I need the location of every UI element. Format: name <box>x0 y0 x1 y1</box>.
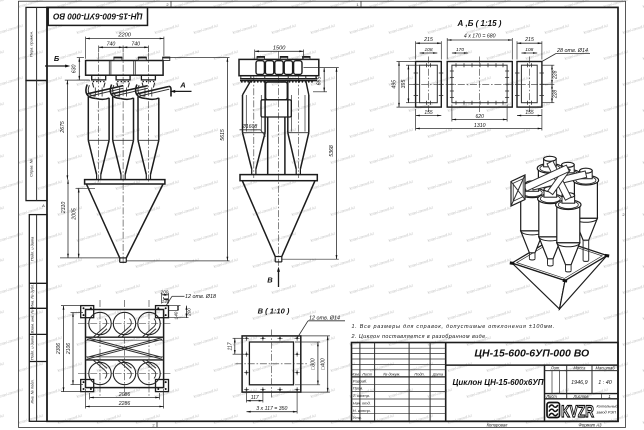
svg-text:1. Все размеры для справок, до: 1. Все размеры для справок, допустимые о… <box>352 324 556 330</box>
svg-text:495: 495 <box>392 80 398 89</box>
svg-text:5368: 5368 <box>329 145 335 157</box>
svg-text:Пров.: Пров. <box>353 386 364 391</box>
svg-text:Ø1608: Ø1608 <box>241 124 258 130</box>
svg-text:№ докум.: № докум. <box>383 371 400 376</box>
svg-text:200: 200 <box>187 308 192 317</box>
svg-text:1 : 40: 1 : 40 <box>598 380 612 386</box>
svg-text:2106: 2106 <box>66 343 72 355</box>
svg-text:1310: 1310 <box>474 123 486 129</box>
svg-text:Перв. примен.: Перв. примен. <box>29 31 34 57</box>
svg-text:665: 665 <box>316 77 322 86</box>
svg-text:228: 228 <box>553 90 559 100</box>
svg-text:□400: □400 <box>320 358 326 370</box>
svg-text:Н. контр.: Н. контр. <box>353 408 371 413</box>
svg-text:228: 228 <box>553 70 559 80</box>
svg-text:ЦН-15-600-6УП-000 ВО: ЦН-15-600-6УП-000 ВО <box>474 348 589 360</box>
svg-text:Копировал: Копировал <box>487 422 508 427</box>
svg-text:215: 215 <box>423 37 433 43</box>
svg-text:215: 215 <box>524 37 534 43</box>
svg-text:Лист: Лист <box>361 371 373 376</box>
svg-text:3 х 117 = 350: 3 х 117 = 350 <box>256 406 287 412</box>
svg-text:Утв.: Утв. <box>353 415 362 420</box>
svg-text:140: 140 <box>174 311 179 319</box>
svg-text:108: 108 <box>424 47 432 53</box>
svg-text:□300: □300 <box>311 358 317 370</box>
svg-text:12 отв. Ø18: 12 отв. Ø18 <box>185 294 216 300</box>
svg-text:Нач. отд.: Нач. отд. <box>353 400 371 405</box>
svg-text:KVZR: KVZR <box>561 404 594 422</box>
svg-text:Лит.: Лит. <box>550 365 561 370</box>
svg-text:Справ. №: Справ. № <box>29 158 34 176</box>
svg-text:Взам. инв. №: Взам. инв. № <box>29 309 34 334</box>
svg-text:2005: 2005 <box>72 208 78 221</box>
svg-text:Дата: Дата <box>432 371 444 376</box>
svg-text:2675: 2675 <box>60 121 66 134</box>
svg-text:Лист: Лист <box>545 394 557 399</box>
svg-text:2. Циклон поставляется в разоб: 2. Циклон поставляется в разобранном вид… <box>351 334 488 340</box>
svg-text:28 отв. Ø14: 28 отв. Ø14 <box>556 48 588 54</box>
svg-text:завод РЭП: завод РЭП <box>596 410 617 415</box>
svg-text:4 х 170 = 680: 4 х 170 = 680 <box>464 33 496 39</box>
svg-text:Изм.: Изм. <box>352 371 360 376</box>
svg-text:117: 117 <box>251 395 259 401</box>
svg-text:2286: 2286 <box>118 401 131 407</box>
svg-text:117: 117 <box>227 342 233 350</box>
svg-text:2310: 2310 <box>61 202 67 215</box>
svg-text:200: 200 <box>160 289 169 294</box>
svg-text:Формат А3: Формат А3 <box>579 422 603 427</box>
svg-text:ЦН-15-600-6УП-000 ВО: ЦН-15-600-6УП-000 ВО <box>52 12 142 21</box>
svg-text:Разраб.: Разраб. <box>353 378 367 383</box>
svg-text:Котельный: Котельный <box>597 404 619 409</box>
svg-text:Подп. и дата: Подп. и дата <box>29 335 34 360</box>
svg-text:Подп. и дата: Подп. и дата <box>29 236 34 261</box>
svg-text:Циклон ЦН-15-600х6УП: Циклон ЦН-15-600х6УП <box>452 378 543 387</box>
svg-text:Т. контр.: Т. контр. <box>353 393 370 398</box>
svg-text:155: 155 <box>424 110 433 116</box>
svg-text:Масса: Масса <box>573 365 586 370</box>
svg-text:А: А <box>42 203 45 208</box>
svg-text:В: В <box>267 276 273 285</box>
svg-text:Б: Б <box>54 54 60 63</box>
svg-text:Листов: Листов <box>573 394 590 399</box>
svg-text:2200: 2200 <box>117 33 131 39</box>
svg-text:Масштаб: Масштаб <box>595 365 615 370</box>
svg-text:395: 395 <box>401 80 407 89</box>
svg-text:170: 170 <box>456 47 464 53</box>
svg-text:А: А <box>179 81 185 90</box>
svg-text:А ,Б ( 1:15 ): А ,Б ( 1:15 ) <box>457 19 502 28</box>
svg-text:108: 108 <box>525 47 533 53</box>
svg-text:1946,9: 1946,9 <box>571 380 588 386</box>
svg-text:Подп.: Подп. <box>414 371 424 376</box>
svg-text:740: 740 <box>107 41 116 47</box>
svg-text:Инв. № подл.: Инв. № подл. <box>29 379 34 403</box>
svg-text:155: 155 <box>525 110 534 116</box>
svg-text:740: 740 <box>131 41 140 47</box>
svg-text:630: 630 <box>72 64 78 73</box>
svg-text:2306: 2306 <box>56 343 62 355</box>
svg-text:1: 1 <box>608 394 611 399</box>
svg-text:5615: 5615 <box>220 129 226 141</box>
svg-text:2086: 2086 <box>118 392 131 398</box>
svg-text:1500: 1500 <box>273 45 286 51</box>
svg-text:Инв. № дубл.: Инв. № дубл. <box>29 284 34 308</box>
svg-text:В ( 1:10 ): В ( 1:10 ) <box>258 307 290 316</box>
svg-text:620: 620 <box>476 114 485 120</box>
